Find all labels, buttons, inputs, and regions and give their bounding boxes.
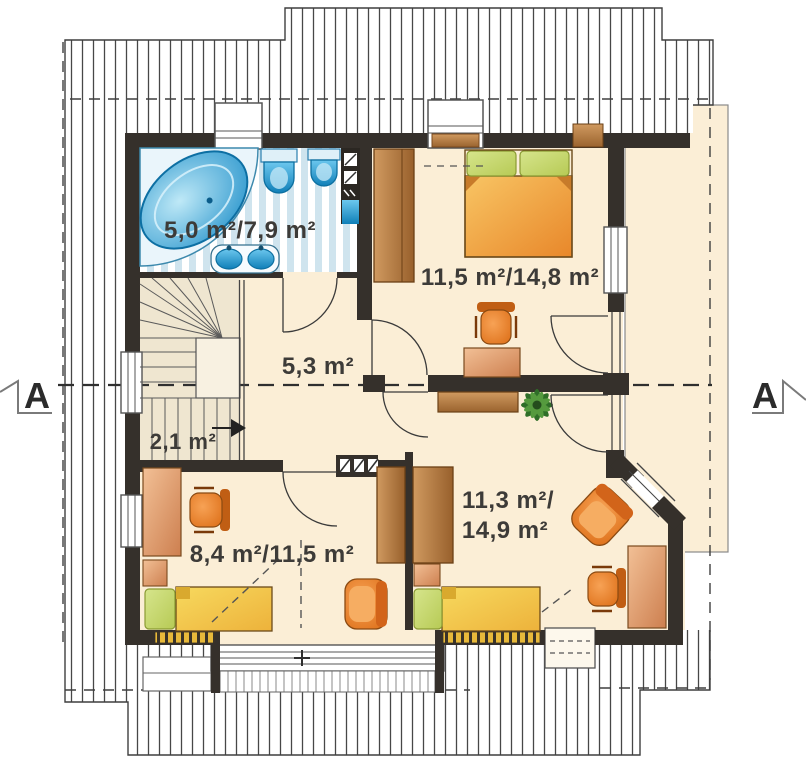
low-cabinet	[443, 632, 540, 643]
wall-middle-2	[428, 375, 625, 392]
wall-niche-chest	[573, 124, 603, 147]
washbasin-right	[248, 249, 274, 269]
wall-top-2	[262, 133, 428, 148]
wardrobe	[413, 467, 453, 563]
wall-left-1	[125, 133, 140, 352]
pillow	[467, 151, 516, 176]
low-cabinet	[155, 632, 215, 643]
single-bed	[414, 587, 540, 631]
balcony-deck	[220, 671, 435, 692]
area-label-staircase: 2,1 m²	[150, 429, 217, 454]
desk-chair	[476, 302, 516, 344]
wall-left-2	[125, 413, 140, 495]
area-label-bedroom-top-right: 11,5 m²/14,8 m²	[421, 264, 599, 291]
pillow	[520, 151, 569, 176]
desk	[464, 348, 520, 377]
knee-wall-post-3	[603, 373, 629, 395]
wall-bottom-3	[595, 630, 683, 645]
roof-skylight	[545, 628, 595, 668]
terrace-step	[143, 657, 211, 691]
potted-plant	[521, 389, 553, 421]
knee-wall-post-1	[608, 148, 624, 227]
pillow	[414, 589, 442, 629]
window-left-bedroom	[121, 495, 142, 547]
section-marker-left-label: A	[24, 375, 50, 416]
dormer-window-bedroom	[428, 100, 483, 148]
wall-bathroom-south-2	[337, 272, 357, 278]
wardrobe	[374, 149, 414, 282]
wall-bedroom-divider	[405, 452, 413, 630]
knee-wall-post-2	[608, 293, 624, 312]
washer-dryer-column	[341, 148, 360, 224]
wardrobe	[377, 467, 405, 563]
armchair	[345, 579, 387, 629]
floor-plan: 5,0 m²/7,9 m² 11,5 m²/14,8 m² 5,3 m² 2,1…	[0, 0, 806, 768]
wall-se-east	[668, 518, 683, 630]
desk	[628, 546, 666, 628]
sideboard	[438, 392, 518, 412]
desk	[143, 468, 181, 556]
nightstand	[143, 560, 167, 586]
window-right-bedroom	[604, 227, 627, 293]
chimney	[336, 455, 378, 477]
desk-chair	[190, 488, 230, 532]
washbasin-counter	[211, 245, 279, 273]
single-bed	[145, 587, 272, 631]
bidet	[308, 149, 340, 186]
area-label-bedroom-bottom-left: 8,4 m²/11,5 m²	[190, 541, 354, 568]
wall-middle-1	[363, 375, 385, 392]
dormer-window-bathroom	[215, 103, 262, 149]
washbasin-left	[216, 249, 242, 269]
nightstand	[414, 564, 440, 586]
area-label-bedroom-bottom-right-line2: 14,9 m²	[462, 517, 548, 544]
pillow	[145, 589, 175, 629]
section-marker-right-label: A	[752, 375, 778, 416]
desk-chair	[588, 567, 626, 611]
area-label-bedroom-bottom-right-line1: 11,3 m²/	[462, 487, 554, 514]
toilet	[261, 149, 297, 193]
window-left-staircase	[121, 352, 142, 413]
area-label-hall: 5,3 m²	[282, 353, 354, 380]
stairs-landing	[196, 338, 240, 398]
area-label-bathroom: 5,0 m²/7,9 m²	[164, 217, 316, 244]
dormer-sill	[432, 134, 479, 147]
